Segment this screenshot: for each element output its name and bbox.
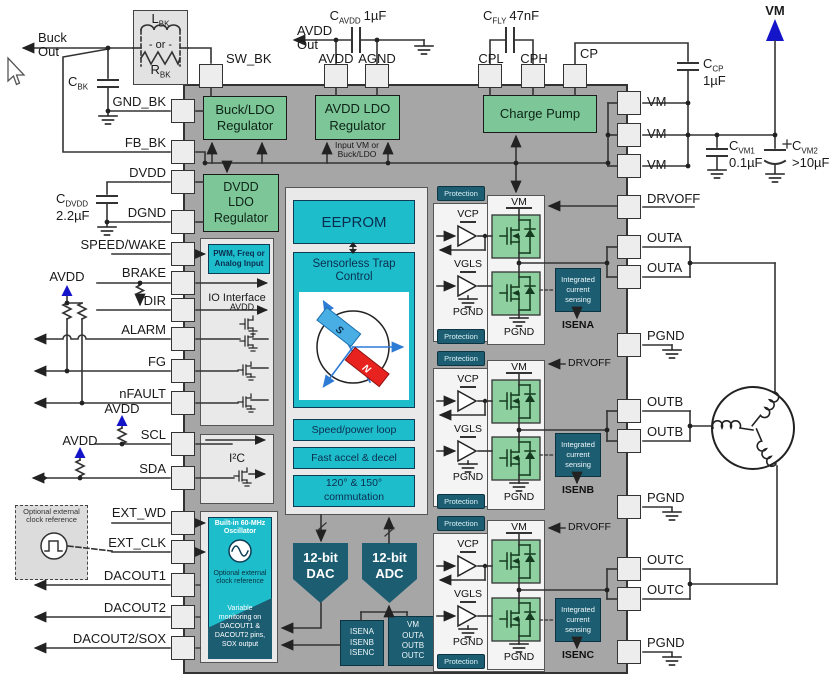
c_avdd-label: CAVDD1µF <box>326 9 390 26</box>
pin-dgnd <box>171 210 195 234</box>
vm-rail-label: VM <box>761 4 789 18</box>
phase-c-pgnd-bottom: PGND <box>495 651 543 663</box>
protection-badge: Protection <box>437 186 485 201</box>
pin-gnd_bk <box>171 99 195 123</box>
pin-sda <box>171 466 195 490</box>
ground-icon <box>98 227 116 235</box>
phase-b-pgnd-bottom: PGND <box>495 491 543 503</box>
oscillator-sine-icon <box>229 540 251 562</box>
c_vm2-label: CVM2>10µF <box>792 139 829 171</box>
buck-out-label: Buck Out <box>38 31 67 60</box>
phase-a-pgnd-left: PGND <box>444 306 492 318</box>
i2c-label: I²C <box>200 452 274 465</box>
phase-c-vm-label: VM <box>504 521 534 533</box>
pin-vm2 <box>617 123 641 147</box>
r_bk-label: RBK <box>133 63 188 80</box>
pin-fb_bk <box>171 140 195 164</box>
nmos-icon <box>238 362 255 380</box>
pin-outb1 <box>617 399 641 423</box>
phase-a-vcp-label: VCP <box>446 208 490 220</box>
phase-c-vcp-label: VCP <box>446 538 490 550</box>
pin-label-dacout2_sox: DACOUT2/SOX <box>62 632 166 646</box>
pin-brake <box>171 271 195 295</box>
protection-badge: Protection <box>437 329 485 344</box>
avdd-out-label: AVDD Out <box>297 24 332 53</box>
ground-icon <box>663 350 681 358</box>
io-avdd-label: AVDD <box>220 303 264 313</box>
phase-b-vcp-label: VCP <box>446 373 490 385</box>
pin-label-alarm: ALARM <box>62 323 166 337</box>
trap-title: Sensorless Trap Control <box>293 258 415 283</box>
nmos-icon <box>238 394 255 412</box>
osc-title: Built-in 60-MHz Oscillator <box>209 520 271 535</box>
pin-label-outa2: OUTA <box>647 261 682 275</box>
pin-agnd <box>365 64 389 88</box>
pin-label-cph: CPH <box>520 52 548 66</box>
rotor-graphic: S N <box>308 302 402 387</box>
ground-icon <box>663 657 681 665</box>
pin-vm1 <box>617 91 641 115</box>
isenc-label: ISENC <box>552 649 604 661</box>
pin-label-pgnd1: PGND <box>647 329 685 343</box>
eeprom-arrow-up <box>349 242 357 247</box>
pin-label-dacout1: DACOUT1 <box>62 569 166 583</box>
pin-label-sw_bk: SW_BK <box>226 52 272 66</box>
phase-b-pgnd-left: PGND <box>444 471 492 483</box>
c_fly-label: CFLY47nF <box>480 9 542 26</box>
sda-right-arrowhead <box>42 475 48 482</box>
ground-icon <box>766 174 784 182</box>
protection-badge: Protection <box>437 351 485 366</box>
pin-label-outc2: OUTC <box>647 583 684 597</box>
pin-dacout2_sox <box>171 636 195 660</box>
pin-label-avdd-top: AVDD <box>316 52 356 66</box>
nmos-icon <box>234 468 251 486</box>
pin-label-cp: CP <box>580 47 598 61</box>
pin-pgnd2 <box>617 495 641 519</box>
pin-label-fb_bk: FB_BK <box>62 136 166 150</box>
pin-label-dacout2: DACOUT2 <box>62 601 166 615</box>
pin-outa2 <box>617 265 641 289</box>
ground-icon <box>510 483 528 491</box>
phase-b-drvoff-label: DRVOFF <box>568 357 622 369</box>
pin-label-cpl: CPL <box>478 52 504 66</box>
pin-cp <box>563 64 587 88</box>
pin-label-ext_clk: EXT_CLK <box>62 536 166 550</box>
avdd-rail-label-2: AVDD <box>102 402 142 416</box>
pin-label-agnd: AGND <box>356 52 398 66</box>
ground-icon <box>415 46 433 54</box>
pin-label-outa1: OUTA <box>647 231 682 245</box>
pin-dacout1 <box>171 573 195 597</box>
pin-alarm <box>171 327 195 351</box>
pin-label-outb2: OUTB <box>647 425 683 439</box>
monitoring-label: Variable monitoring on DACOUT1 & DACOUT2… <box>210 604 270 649</box>
eeprom-arrow-down <box>349 249 357 254</box>
pin-outa1 <box>617 235 641 259</box>
protection-badge: Protection <box>437 494 485 509</box>
osc-clock-ref: Optional external clock reference <box>209 570 271 585</box>
phase-a-vm-label: VM <box>504 196 534 208</box>
mouse-cursor-icon <box>8 58 24 85</box>
pin-dacout2 <box>171 605 195 629</box>
pin-label-vm1: VM <box>647 95 667 109</box>
phase-c-pgnd-left: PGND <box>444 636 492 648</box>
fet-cells <box>492 215 540 641</box>
or-label: - or - <box>133 39 188 51</box>
pin-vm3 <box>617 154 641 178</box>
pin-ext_clk <box>171 540 195 564</box>
nmos-icon <box>240 333 257 351</box>
pin-sw_bk <box>199 64 223 88</box>
pin-fg <box>171 359 195 383</box>
clock-ref-label: Optional external clock reference <box>16 508 87 525</box>
pin-label-vm2: VM <box>647 127 667 141</box>
pin-pgnd1 <box>617 333 641 357</box>
pin-label-vm3: VM <box>647 158 667 172</box>
block-diagram: Buck/LDO Regulator AVDD LDO Regulator Ch… <box>0 0 830 689</box>
pin-speed_wake <box>171 242 195 266</box>
c_bk-label: CBK <box>68 75 88 92</box>
pin-outb2 <box>617 429 641 453</box>
ground-icon <box>99 116 117 124</box>
pin-dir <box>171 298 195 322</box>
pin-label-nfault: nFAULT <box>62 387 166 401</box>
ground-icon <box>510 318 528 326</box>
ground-icon <box>708 170 726 178</box>
vm-bus-wires <box>196 88 617 222</box>
pin-label-dir: DIR <box>62 294 166 308</box>
isenb-label: ISENB <box>552 484 604 496</box>
nmos-icon <box>240 316 257 334</box>
pin-label-drvoff: DRVOFF <box>647 192 700 206</box>
pin-avdd-top <box>324 64 348 88</box>
phase-a-pgnd-bottom: PGND <box>495 326 543 338</box>
pin-label-fg: FG <box>62 355 166 369</box>
pin-outc2 <box>617 587 641 611</box>
isena-label: ISENA <box>552 319 604 331</box>
pin-scl <box>171 432 195 456</box>
phase-b-vm-label: VM <box>504 361 534 373</box>
pin-label-pgnd3: PGND <box>647 636 685 650</box>
pin-pgnd3 <box>617 640 641 664</box>
ground-icon <box>663 512 681 520</box>
pin-label-dvdd: DVDD <box>62 166 166 180</box>
pin-ext_wd <box>171 511 195 535</box>
avdd-rail-label-3: AVDD <box>60 434 100 448</box>
pin-outc1 <box>617 557 641 581</box>
pin-label-speed_wake: SPEED/WAKE <box>62 238 166 252</box>
avdd-rail-label-1: AVDD <box>44 270 90 284</box>
phase-b-vgls-label: VGLS <box>446 423 490 435</box>
pin-label-outc1: OUTC <box>647 553 684 567</box>
pin-drvoff <box>617 195 641 219</box>
pin-label-outb1: OUTB <box>647 395 683 409</box>
pin-nfault <box>171 391 195 415</box>
c_vm1-label: CVM10.1µF <box>729 139 763 171</box>
phase-c-vgls-label: VGLS <box>446 588 490 600</box>
pin-label-sda: SDA <box>62 462 166 476</box>
protection-badge: Protection <box>437 516 485 531</box>
input-vm-note: Input VM or Buck/LDO <box>328 141 386 160</box>
l_bk-label: LBK <box>133 12 188 29</box>
pin-label-pgnd2: PGND <box>647 491 685 505</box>
dac-adc-wires <box>283 245 407 645</box>
pin-dvdd <box>171 170 195 194</box>
phase-c-drvoff-label: DRVOFF <box>568 521 622 533</box>
c_cp-label: CCP1µF <box>703 57 726 89</box>
pin-label-gnd_bk: GND_BK <box>62 95 166 109</box>
phase-a-vgls-label: VGLS <box>446 258 490 270</box>
pin-cpl <box>478 64 502 88</box>
motor-icon <box>712 387 794 469</box>
c_dvdd-label: CDVDD2.2µF <box>56 192 90 224</box>
pin-cph <box>521 64 545 88</box>
protection-badge: Protection <box>437 654 485 669</box>
